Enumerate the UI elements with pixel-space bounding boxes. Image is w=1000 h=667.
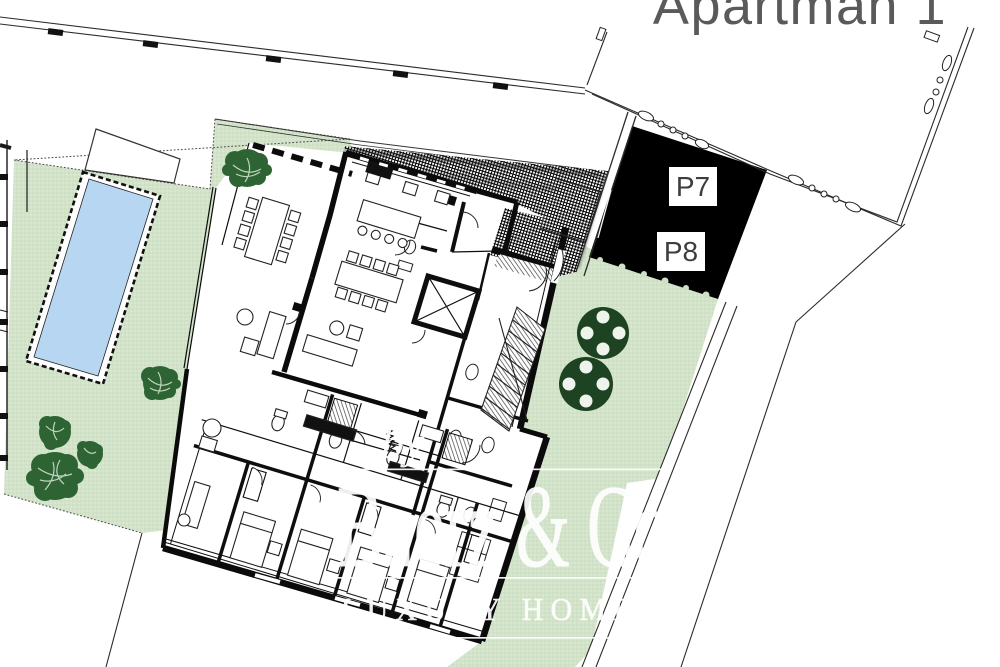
svg-text:LUXURY HOMES: LUXURY HOMES (341, 591, 663, 627)
svg-text:P8: P8 (664, 236, 698, 267)
svg-text:Baerz & Co: Baerz & Co (337, 461, 668, 592)
svg-text:Apartman 1: Apartman 1 (653, 0, 947, 36)
svg-text:P7: P7 (676, 171, 710, 202)
